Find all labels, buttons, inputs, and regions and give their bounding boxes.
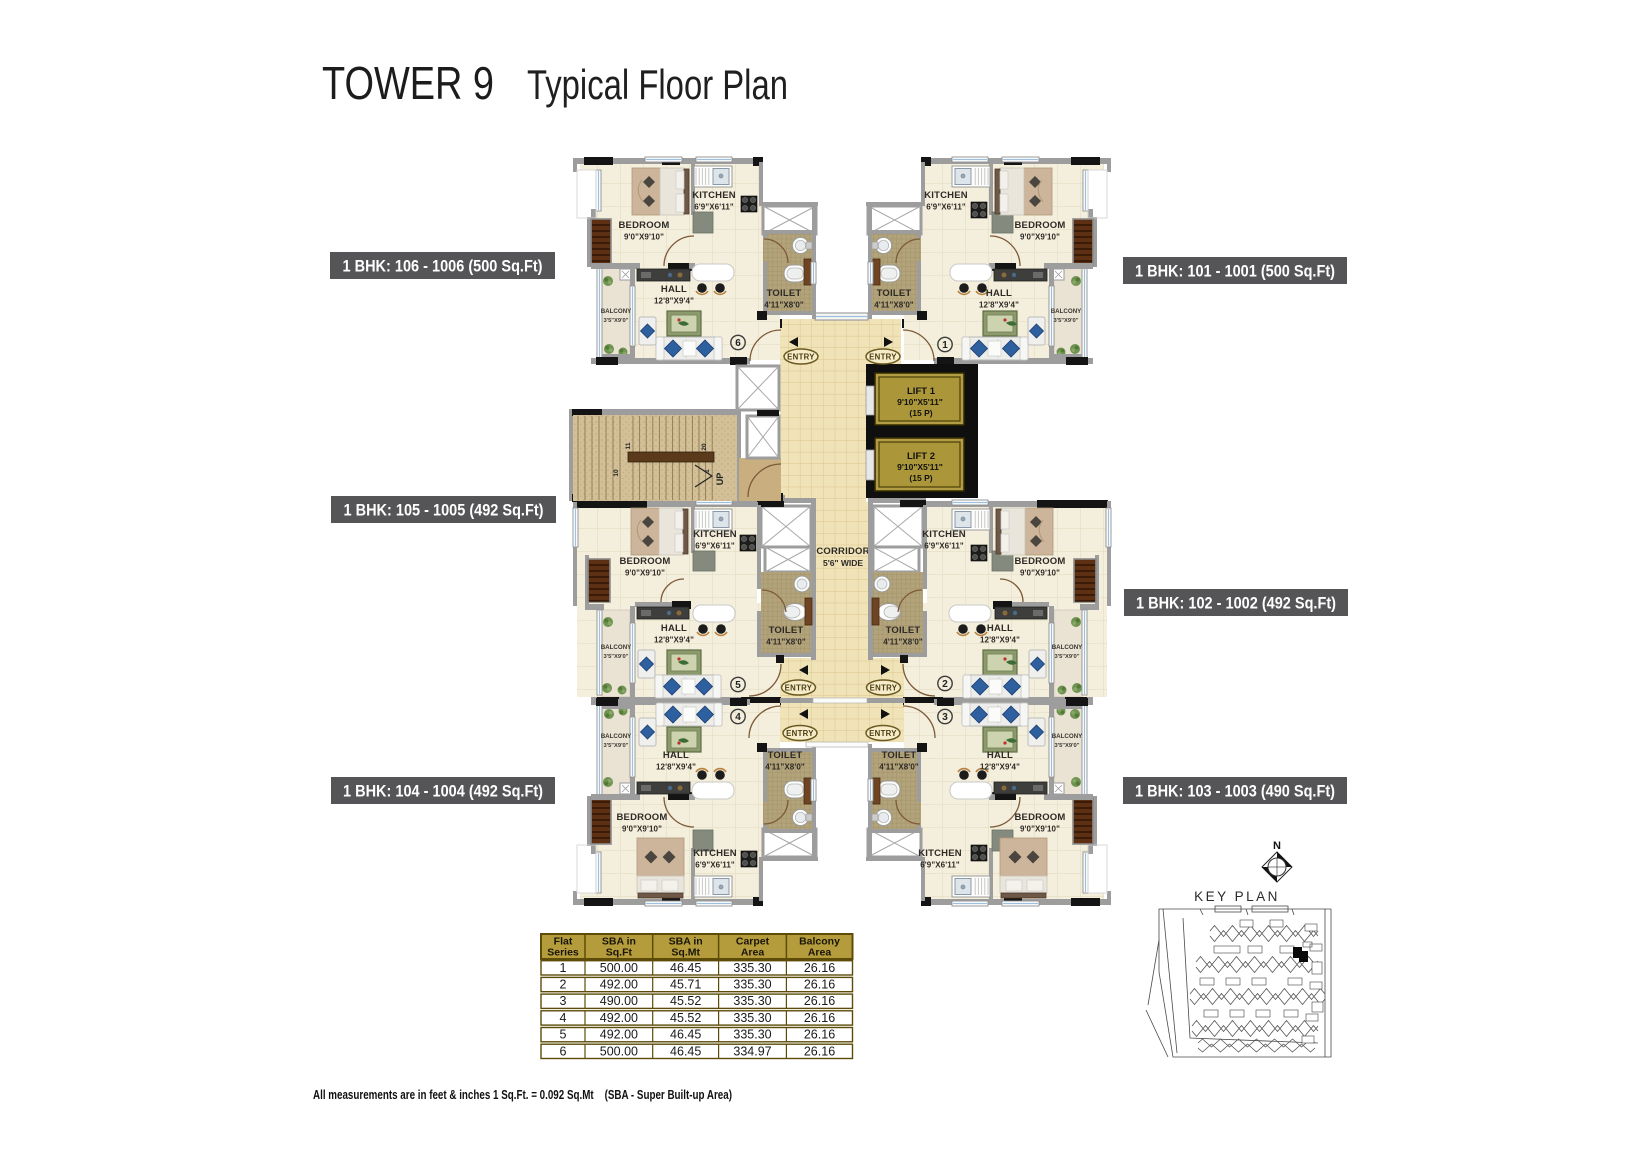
svg-text:4: 4: [735, 712, 741, 723]
svg-text:3'5"X9'0": 3'5"X9'0": [603, 654, 628, 660]
svg-text:20: 20: [701, 443, 708, 451]
svg-text:6'9"X6'11": 6'9"X6'11": [926, 203, 966, 212]
svg-text:26.16: 26.16: [804, 1011, 835, 1025]
svg-text:All measurements are in feet &: All measurements are in feet & inches 1 …: [313, 1088, 732, 1102]
svg-text:(15 P): (15 P): [909, 408, 932, 418]
svg-text:490.00: 490.00: [600, 994, 638, 1008]
svg-text:26.16: 26.16: [804, 1028, 835, 1042]
svg-text:45.52: 45.52: [670, 994, 701, 1008]
svg-text:12'8"X9'4": 12'8"X9'4": [980, 763, 1020, 772]
svg-text:12'8"X9'4": 12'8"X9'4": [979, 301, 1019, 310]
svg-text:KITCHEN: KITCHEN: [922, 529, 966, 540]
svg-text:2: 2: [560, 978, 567, 992]
svg-text:1 BHK: 105 - 1005 (492 Sq.Ft): 1 BHK: 105 - 1005 (492 Sq.Ft): [344, 501, 544, 520]
svg-text:KEY PLAN: KEY PLAN: [1194, 889, 1280, 904]
svg-text:335.30: 335.30: [733, 978, 771, 992]
svg-text:9'10"X5'11": 9'10"X5'11": [897, 462, 943, 472]
svg-text:6'9"X6'11": 6'9"X6'11": [924, 542, 964, 551]
svg-text:1 BHK: 103 - 1003 (490 Sq.Ft): 1 BHK: 103 - 1003 (490 Sq.Ft): [1135, 782, 1335, 801]
svg-text:TOILET: TOILET: [769, 625, 804, 636]
svg-text:12'8"X9'4": 12'8"X9'4": [654, 297, 694, 306]
svg-text:KITCHEN: KITCHEN: [918, 848, 962, 859]
svg-text:9'0"X9'10": 9'0"X9'10": [622, 825, 662, 834]
svg-text:3'5"X9'0": 3'5"X9'0": [1054, 654, 1079, 660]
svg-text:26.16: 26.16: [804, 1044, 835, 1058]
svg-text:HALL: HALL: [987, 623, 1013, 634]
svg-text:ENTRY: ENTRY: [870, 684, 898, 693]
svg-text:TOILET: TOILET: [768, 750, 803, 761]
svg-text:1: 1: [942, 340, 948, 351]
svg-text:12'8"X9'4": 12'8"X9'4": [980, 636, 1020, 645]
svg-text:500.00: 500.00: [600, 961, 638, 975]
svg-text:TOILET: TOILET: [767, 288, 802, 299]
svg-text:6: 6: [735, 338, 741, 349]
svg-text:ENTRY: ENTRY: [869, 353, 897, 362]
svg-text:TOWER 9: TOWER 9: [322, 57, 494, 109]
svg-text:UP: UP: [715, 473, 725, 486]
svg-text:492.00: 492.00: [600, 1011, 638, 1025]
svg-text:3'5"X9'0": 3'5"X9'0": [1054, 743, 1079, 749]
svg-text:BALCONY: BALCONY: [1051, 308, 1082, 315]
svg-text:335.30: 335.30: [733, 1011, 771, 1025]
svg-text:HALL: HALL: [987, 750, 1013, 761]
svg-text:KITCHEN: KITCHEN: [693, 848, 737, 859]
svg-text:9'0"X9'10": 9'0"X9'10": [1020, 569, 1060, 578]
svg-text:6'9"X6'11": 6'9"X6'11": [694, 203, 734, 212]
svg-text:26.16: 26.16: [804, 978, 835, 992]
svg-text:4'11"X8'0": 4'11"X8'0": [883, 638, 923, 647]
svg-text:1: 1: [704, 469, 711, 473]
svg-text:500.00: 500.00: [600, 1044, 638, 1058]
svg-text:TOILET: TOILET: [877, 288, 912, 299]
svg-text:9'10"X5'11": 9'10"X5'11": [897, 397, 943, 407]
svg-text:3'5"X9'0": 3'5"X9'0": [603, 743, 628, 749]
svg-text:335.30: 335.30: [733, 1028, 771, 1042]
svg-text:KITCHEN: KITCHEN: [693, 529, 737, 540]
svg-text:BALCONY: BALCONY: [601, 644, 632, 651]
svg-text:N: N: [1273, 840, 1281, 852]
svg-text:3: 3: [560, 994, 567, 1008]
svg-text:CORRIDOR: CORRIDOR: [816, 546, 869, 557]
svg-text:BEDROOM: BEDROOM: [618, 220, 669, 231]
svg-text:4'11"X8'0": 4'11"X8'0": [874, 301, 914, 310]
svg-text:4'11"X8'0": 4'11"X8'0": [879, 763, 919, 772]
svg-text:12'8"X9'4": 12'8"X9'4": [654, 636, 694, 645]
svg-text:46.45: 46.45: [670, 1028, 701, 1042]
svg-text:3'5"X9'0": 3'5"X9'0": [1053, 318, 1078, 324]
svg-text:4: 4: [560, 1011, 567, 1025]
svg-text:(15 P): (15 P): [909, 473, 932, 483]
svg-text:46.45: 46.45: [670, 1044, 701, 1058]
svg-text:TOILET: TOILET: [886, 625, 921, 636]
svg-text:BALCONY: BALCONY: [1052, 644, 1083, 651]
svg-text:LIFT 1: LIFT 1: [907, 386, 936, 397]
svg-text:KITCHEN: KITCHEN: [692, 190, 736, 201]
svg-text:LIFT 2: LIFT 2: [907, 451, 935, 462]
svg-text:4'11"X8'0": 4'11"X8'0": [764, 301, 804, 310]
svg-text:6: 6: [560, 1044, 567, 1058]
svg-text:1 BHK: 106 - 1006 (500 Sq.Ft): 1 BHK: 106 - 1006 (500 Sq.Ft): [343, 257, 543, 276]
svg-text:ENTRY: ENTRY: [869, 729, 897, 738]
svg-text:5: 5: [560, 1028, 567, 1042]
svg-text:335.30: 335.30: [733, 961, 771, 975]
svg-text:3: 3: [942, 712, 948, 723]
svg-text:HALL: HALL: [661, 623, 687, 634]
svg-text:9'0"X9'10": 9'0"X9'10": [1020, 233, 1060, 242]
svg-text:BEDROOM: BEDROOM: [1014, 220, 1065, 231]
svg-text:BEDROOM: BEDROOM: [1014, 812, 1065, 823]
svg-text:12'8"X9'4": 12'8"X9'4": [656, 763, 696, 772]
svg-text:5: 5: [735, 680, 741, 691]
svg-text:Series: Series: [547, 947, 579, 959]
svg-text:BEDROOM: BEDROOM: [619, 556, 670, 567]
svg-text:11: 11: [625, 442, 632, 449]
svg-text:BALCONY: BALCONY: [601, 733, 632, 740]
svg-text:Sq.Ft: Sq.Ft: [606, 947, 633, 959]
svg-text:BALCONY: BALCONY: [1052, 733, 1083, 740]
svg-text:BALCONY: BALCONY: [601, 308, 632, 315]
svg-text:Area: Area: [808, 947, 832, 959]
svg-text:45.52: 45.52: [670, 1011, 701, 1025]
svg-text:Sq.Mt: Sq.Mt: [671, 947, 700, 959]
svg-text:4'11"X8'0": 4'11"X8'0": [765, 763, 805, 772]
svg-text:BEDROOM: BEDROOM: [1014, 556, 1065, 567]
svg-text:26.16: 26.16: [804, 961, 835, 975]
svg-text:492.00: 492.00: [600, 1028, 638, 1042]
svg-text:26.16: 26.16: [804, 994, 835, 1008]
svg-text:492.00: 492.00: [600, 978, 638, 992]
svg-text:Area: Area: [741, 947, 765, 959]
svg-text:10: 10: [613, 469, 620, 477]
svg-text:HALL: HALL: [661, 284, 687, 295]
svg-text:ENTRY: ENTRY: [785, 684, 813, 693]
svg-text:9'0"X9'10": 9'0"X9'10": [1020, 825, 1060, 834]
svg-text:334.97: 334.97: [733, 1044, 771, 1058]
svg-text:9'0"X9'10": 9'0"X9'10": [624, 233, 664, 242]
svg-text:ENTRY: ENTRY: [787, 353, 815, 362]
svg-text:1 BHK: 102 - 1002 (492 Sq.Ft): 1 BHK: 102 - 1002 (492 Sq.Ft): [1136, 594, 1336, 613]
svg-text:2: 2: [942, 679, 948, 690]
svg-text:45.71: 45.71: [670, 978, 701, 992]
svg-text:46.45: 46.45: [670, 961, 701, 975]
svg-text:1: 1: [560, 961, 567, 975]
svg-text:BEDROOM: BEDROOM: [616, 812, 667, 823]
svg-text:5'6" WIDE: 5'6" WIDE: [823, 558, 863, 568]
svg-text:1 BHK: 101 - 1001 (500 Sq.Ft): 1 BHK: 101 - 1001 (500 Sq.Ft): [1135, 262, 1335, 281]
svg-text:6'9"X6'11": 6'9"X6'11": [695, 861, 735, 870]
svg-text:HALL: HALL: [663, 750, 689, 761]
svg-text:335.30: 335.30: [733, 994, 771, 1008]
svg-text:1 BHK: 104 - 1004 (492 Sq.Ft): 1 BHK: 104 - 1004 (492 Sq.Ft): [343, 782, 543, 801]
svg-text:TOILET: TOILET: [882, 750, 917, 761]
svg-text:3'5"X9'0": 3'5"X9'0": [603, 318, 628, 324]
svg-text:6'9"X6'11": 6'9"X6'11": [695, 542, 735, 551]
svg-text:Typical Floor Plan: Typical Floor Plan: [527, 61, 788, 108]
svg-text:ENTRY: ENTRY: [786, 729, 814, 738]
svg-text:9'0"X9'10": 9'0"X9'10": [625, 569, 665, 578]
svg-text:HALL: HALL: [986, 288, 1012, 299]
svg-text:6'9"X6'11": 6'9"X6'11": [920, 861, 960, 870]
svg-text:4'11"X8'0": 4'11"X8'0": [766, 638, 806, 647]
svg-text:KITCHEN: KITCHEN: [924, 190, 968, 201]
